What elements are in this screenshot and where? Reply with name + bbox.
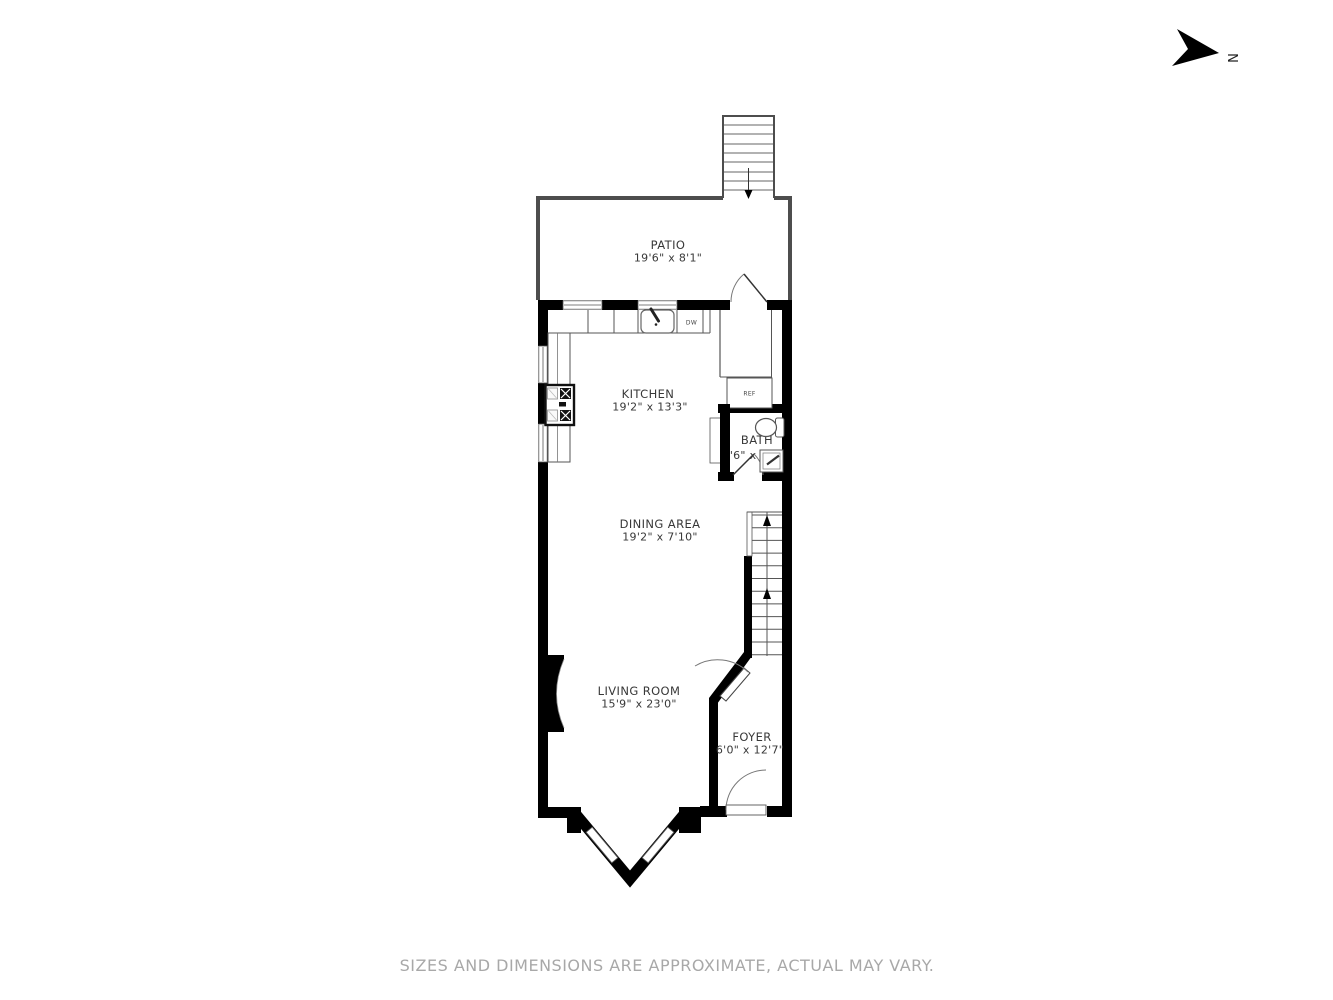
living-dims: 15'9" x 23'0" bbox=[601, 698, 677, 711]
bath-sink-icon bbox=[760, 450, 783, 472]
living-label: LIVING ROOM bbox=[598, 684, 681, 698]
patio-dims: 19'6" x 8'1" bbox=[634, 252, 702, 265]
kitchen-label: KITCHEN bbox=[622, 387, 675, 401]
dining-label: DINING AREA bbox=[620, 517, 701, 531]
bay-window-walls bbox=[574, 812, 686, 879]
exterior-stairs bbox=[723, 115, 774, 199]
patio-label: PATIO bbox=[651, 238, 686, 252]
north-label: N bbox=[1224, 53, 1239, 63]
dishwasher-label: DW bbox=[686, 320, 697, 327]
stairs-up-arrow-icon bbox=[763, 588, 771, 599]
floor-plan-page: N bbox=[0, 0, 1333, 1000]
stove bbox=[546, 385, 575, 425]
fireplace bbox=[538, 655, 564, 732]
burner-icon bbox=[560, 410, 571, 421]
foyer-label: FOYER bbox=[732, 730, 771, 744]
interior-staircase bbox=[747, 512, 782, 656]
dining-dims: 19'2" x 7'10" bbox=[622, 531, 698, 544]
refrigerator: REF bbox=[720, 310, 772, 408]
kitchen-sink bbox=[641, 309, 674, 333]
floor-plan-drawing: N bbox=[0, 0, 1333, 1000]
stairs-up-arrow-icon bbox=[763, 515, 771, 526]
room-labels: PATIO 19'6" x 8'1" KITCHEN 19'2" x 13'3"… bbox=[598, 238, 784, 757]
disclaimer-text: SIZES AND DIMENSIONS ARE APPROXIMATE, AC… bbox=[400, 956, 935, 975]
front-door bbox=[726, 770, 766, 815]
burner-icon bbox=[560, 388, 571, 399]
refrigerator-label: REF bbox=[743, 391, 756, 398]
toilet-icon bbox=[756, 418, 785, 437]
bath-left-wall-overlay bbox=[720, 404, 730, 481]
kitchen-dims: 19'2" x 13'3" bbox=[612, 401, 688, 414]
patio-door bbox=[731, 274, 767, 302]
foyer-dims: 6'0" x 12'7" bbox=[716, 744, 784, 757]
compass: N bbox=[1172, 29, 1239, 66]
bay-window-right bbox=[642, 827, 674, 863]
north-arrow-icon bbox=[1172, 29, 1219, 66]
stairs-down-arrow-icon bbox=[745, 190, 753, 199]
bay-window-left bbox=[586, 827, 618, 863]
